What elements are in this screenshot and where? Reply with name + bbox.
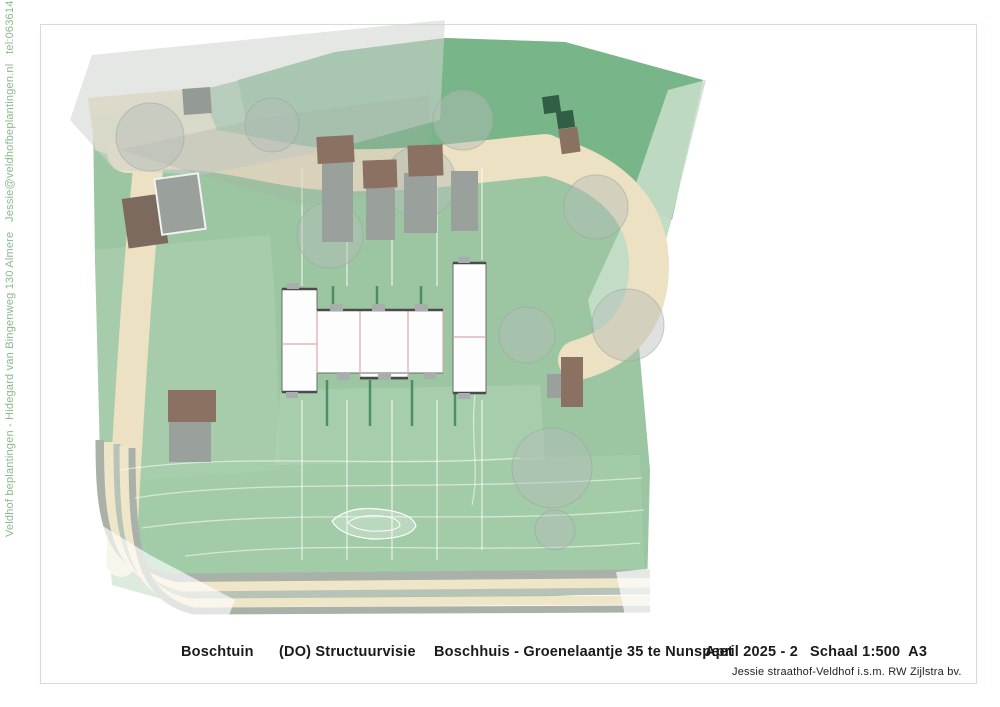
- berging-topright: [558, 127, 580, 154]
- berging-1: [316, 135, 354, 164]
- existing-tree-ghost-1: [245, 98, 299, 152]
- house-topleft: [182, 87, 212, 115]
- existing-tree-ghost-5: [592, 289, 664, 361]
- berging-2: [363, 159, 398, 188]
- entrance-stoop-6: [286, 392, 298, 398]
- berging-right: [561, 357, 583, 407]
- carport-2: [366, 188, 395, 240]
- main-building-block-1: [317, 310, 443, 373]
- entrance-stoop-9: [458, 257, 470, 263]
- existing-tree-ghost-0: [116, 103, 184, 171]
- entrance-stoop-3: [337, 373, 350, 380]
- carport-right: [547, 374, 562, 398]
- entrance-stoop-1: [372, 304, 385, 311]
- carport-topleft: [154, 173, 205, 235]
- entrance-stoop-8: [287, 283, 299, 289]
- overlay-garden: [275, 385, 545, 465]
- entrance-stoop-4: [378, 373, 391, 380]
- carport-1: [322, 162, 353, 242]
- hedge-block-1: [542, 95, 561, 114]
- entrance-stoop-0: [330, 304, 343, 311]
- haze-bottom-right: [616, 568, 685, 640]
- existing-tree-ghost-4: [564, 175, 628, 239]
- hedge-block-2: [556, 110, 575, 129]
- main-building-block-0: [282, 289, 317, 392]
- existing-tree-ghost-3: [433, 90, 493, 150]
- site-plan-drawing: [0, 0, 1000, 707]
- existing-tree-ghost-6: [512, 428, 592, 508]
- entrance-stoop-5: [424, 373, 436, 379]
- entrance-stoop-2: [415, 304, 428, 311]
- berging-left: [168, 390, 216, 422]
- existing-tree-ghost-9: [535, 510, 575, 550]
- carport-3: [404, 173, 437, 233]
- carport-left: [169, 422, 211, 462]
- plan-sheet: Veldhof beplantingen - Hidegard van Bing…: [0, 0, 1000, 707]
- berging-3: [407, 144, 443, 176]
- carport-4: [451, 171, 478, 231]
- entrance-stoop-7: [458, 393, 470, 399]
- main-building-block-2: [453, 263, 486, 393]
- existing-tree-ghost-8: [499, 307, 555, 363]
